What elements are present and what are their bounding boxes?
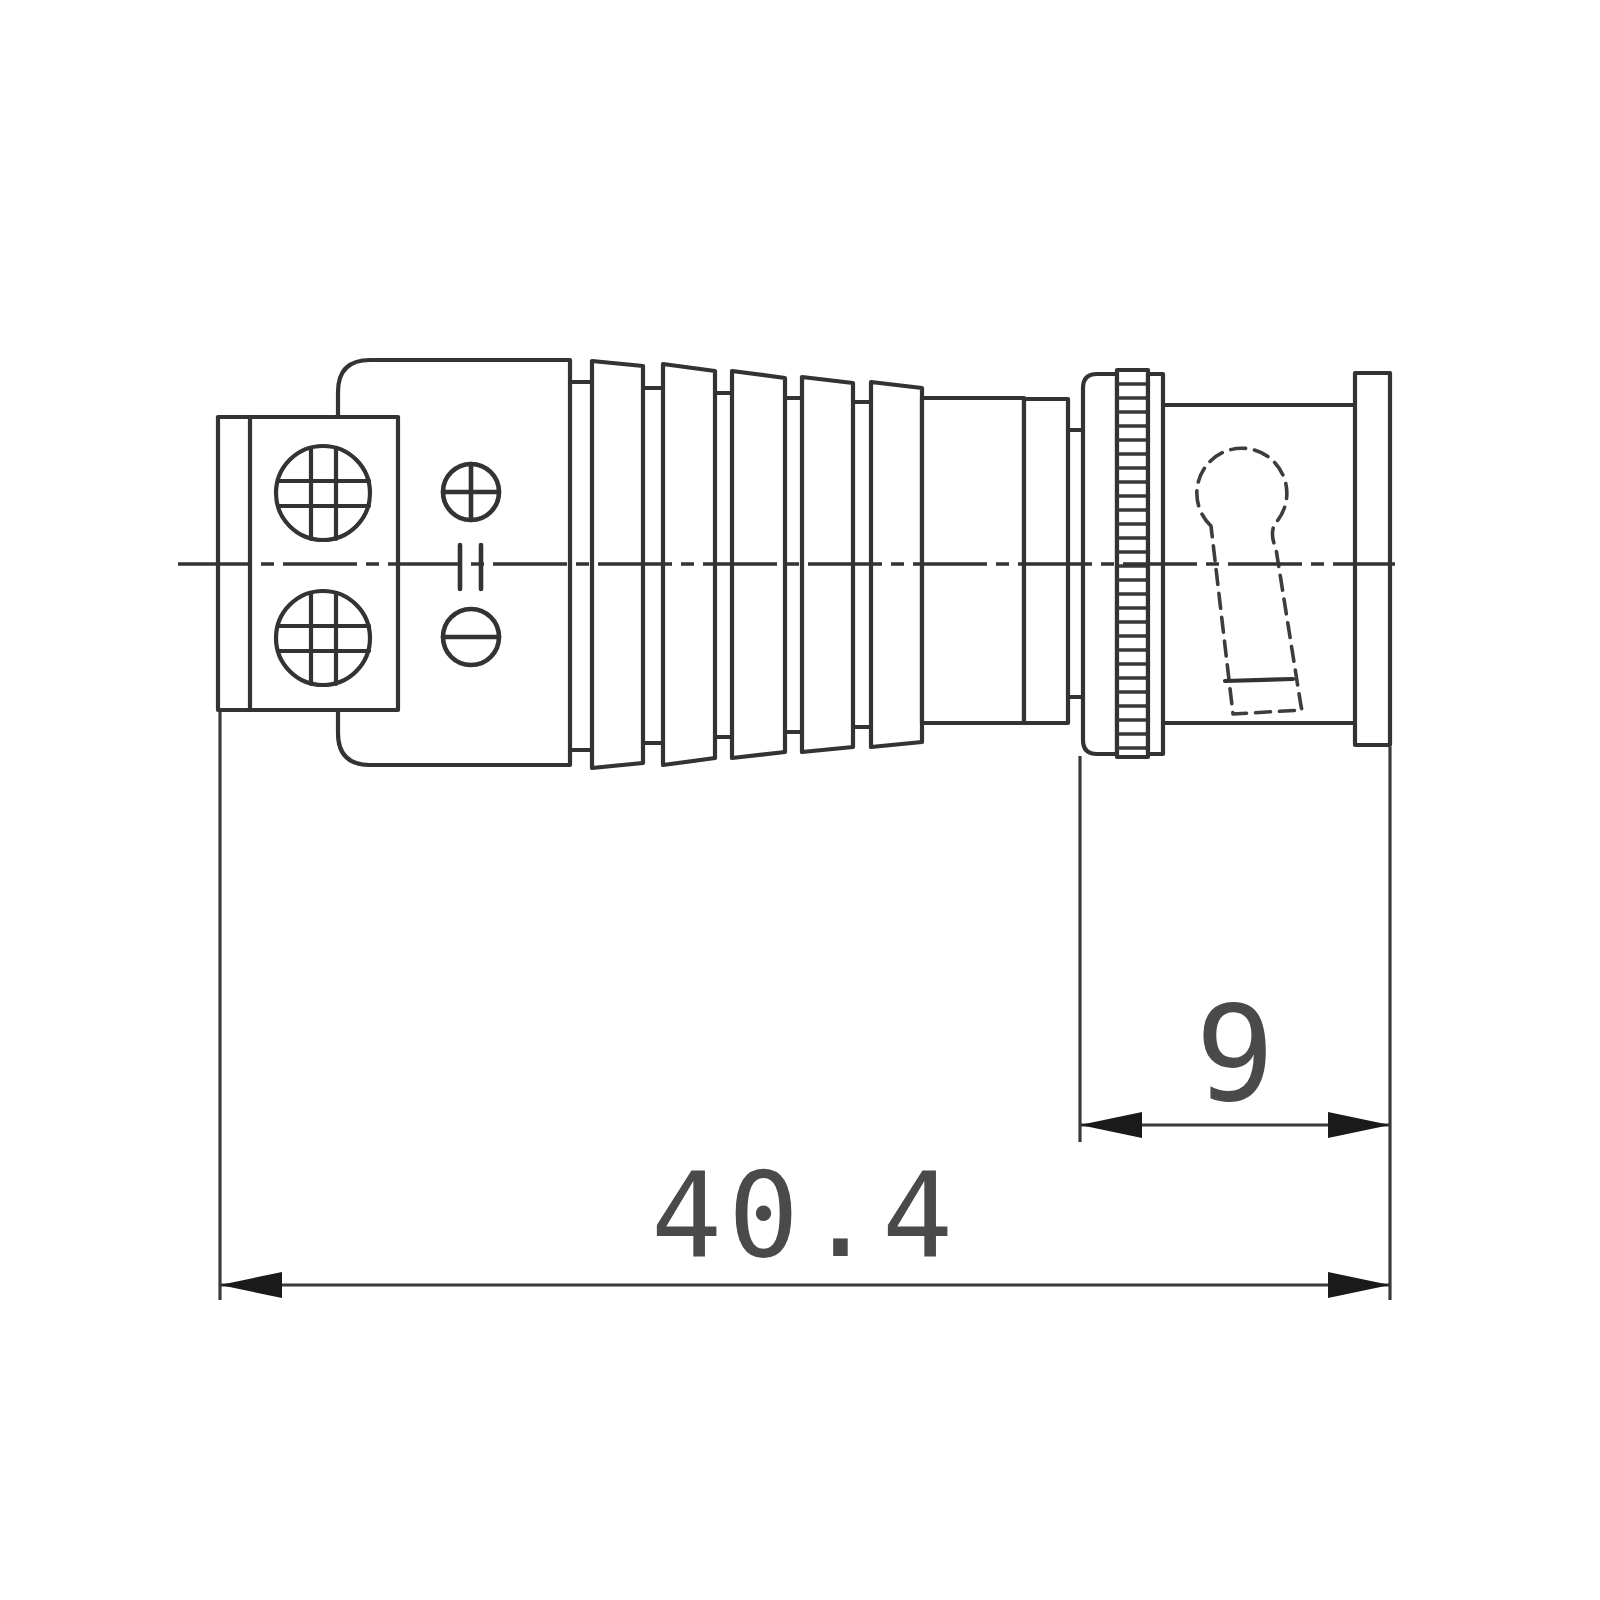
bayonet-slot-step — [1225, 679, 1293, 681]
barrel-washer — [1024, 399, 1068, 723]
bayonet-slot — [1197, 448, 1302, 714]
positive-terminal-icon — [443, 464, 499, 520]
dimension-value: 40.4 — [651, 1146, 959, 1284]
arrow-left-icon — [1080, 1112, 1142, 1138]
dimension-coupling-length: 9 — [1080, 756, 1390, 1142]
phillips-screw-bottom — [276, 591, 370, 685]
barrel-sections — [922, 398, 1083, 723]
knurl-hatching — [1117, 384, 1148, 748]
screw-head-icon — [276, 591, 370, 685]
technical-drawing-canvas: 9 40.4 — [0, 0, 1600, 1600]
end-flange — [1355, 373, 1390, 745]
barrel-cylinder — [922, 398, 1024, 723]
phillips-screw-top — [276, 446, 370, 540]
arrow-right-icon — [1328, 1272, 1390, 1298]
screw-head-icon — [276, 446, 370, 540]
bnc-body — [1163, 373, 1390, 745]
arrow-right-icon — [1328, 1112, 1390, 1138]
arrow-left-icon — [220, 1272, 282, 1298]
dimension-value: 9 — [1195, 977, 1274, 1131]
connector-drawing: 9 40.4 — [0, 0, 1600, 1600]
